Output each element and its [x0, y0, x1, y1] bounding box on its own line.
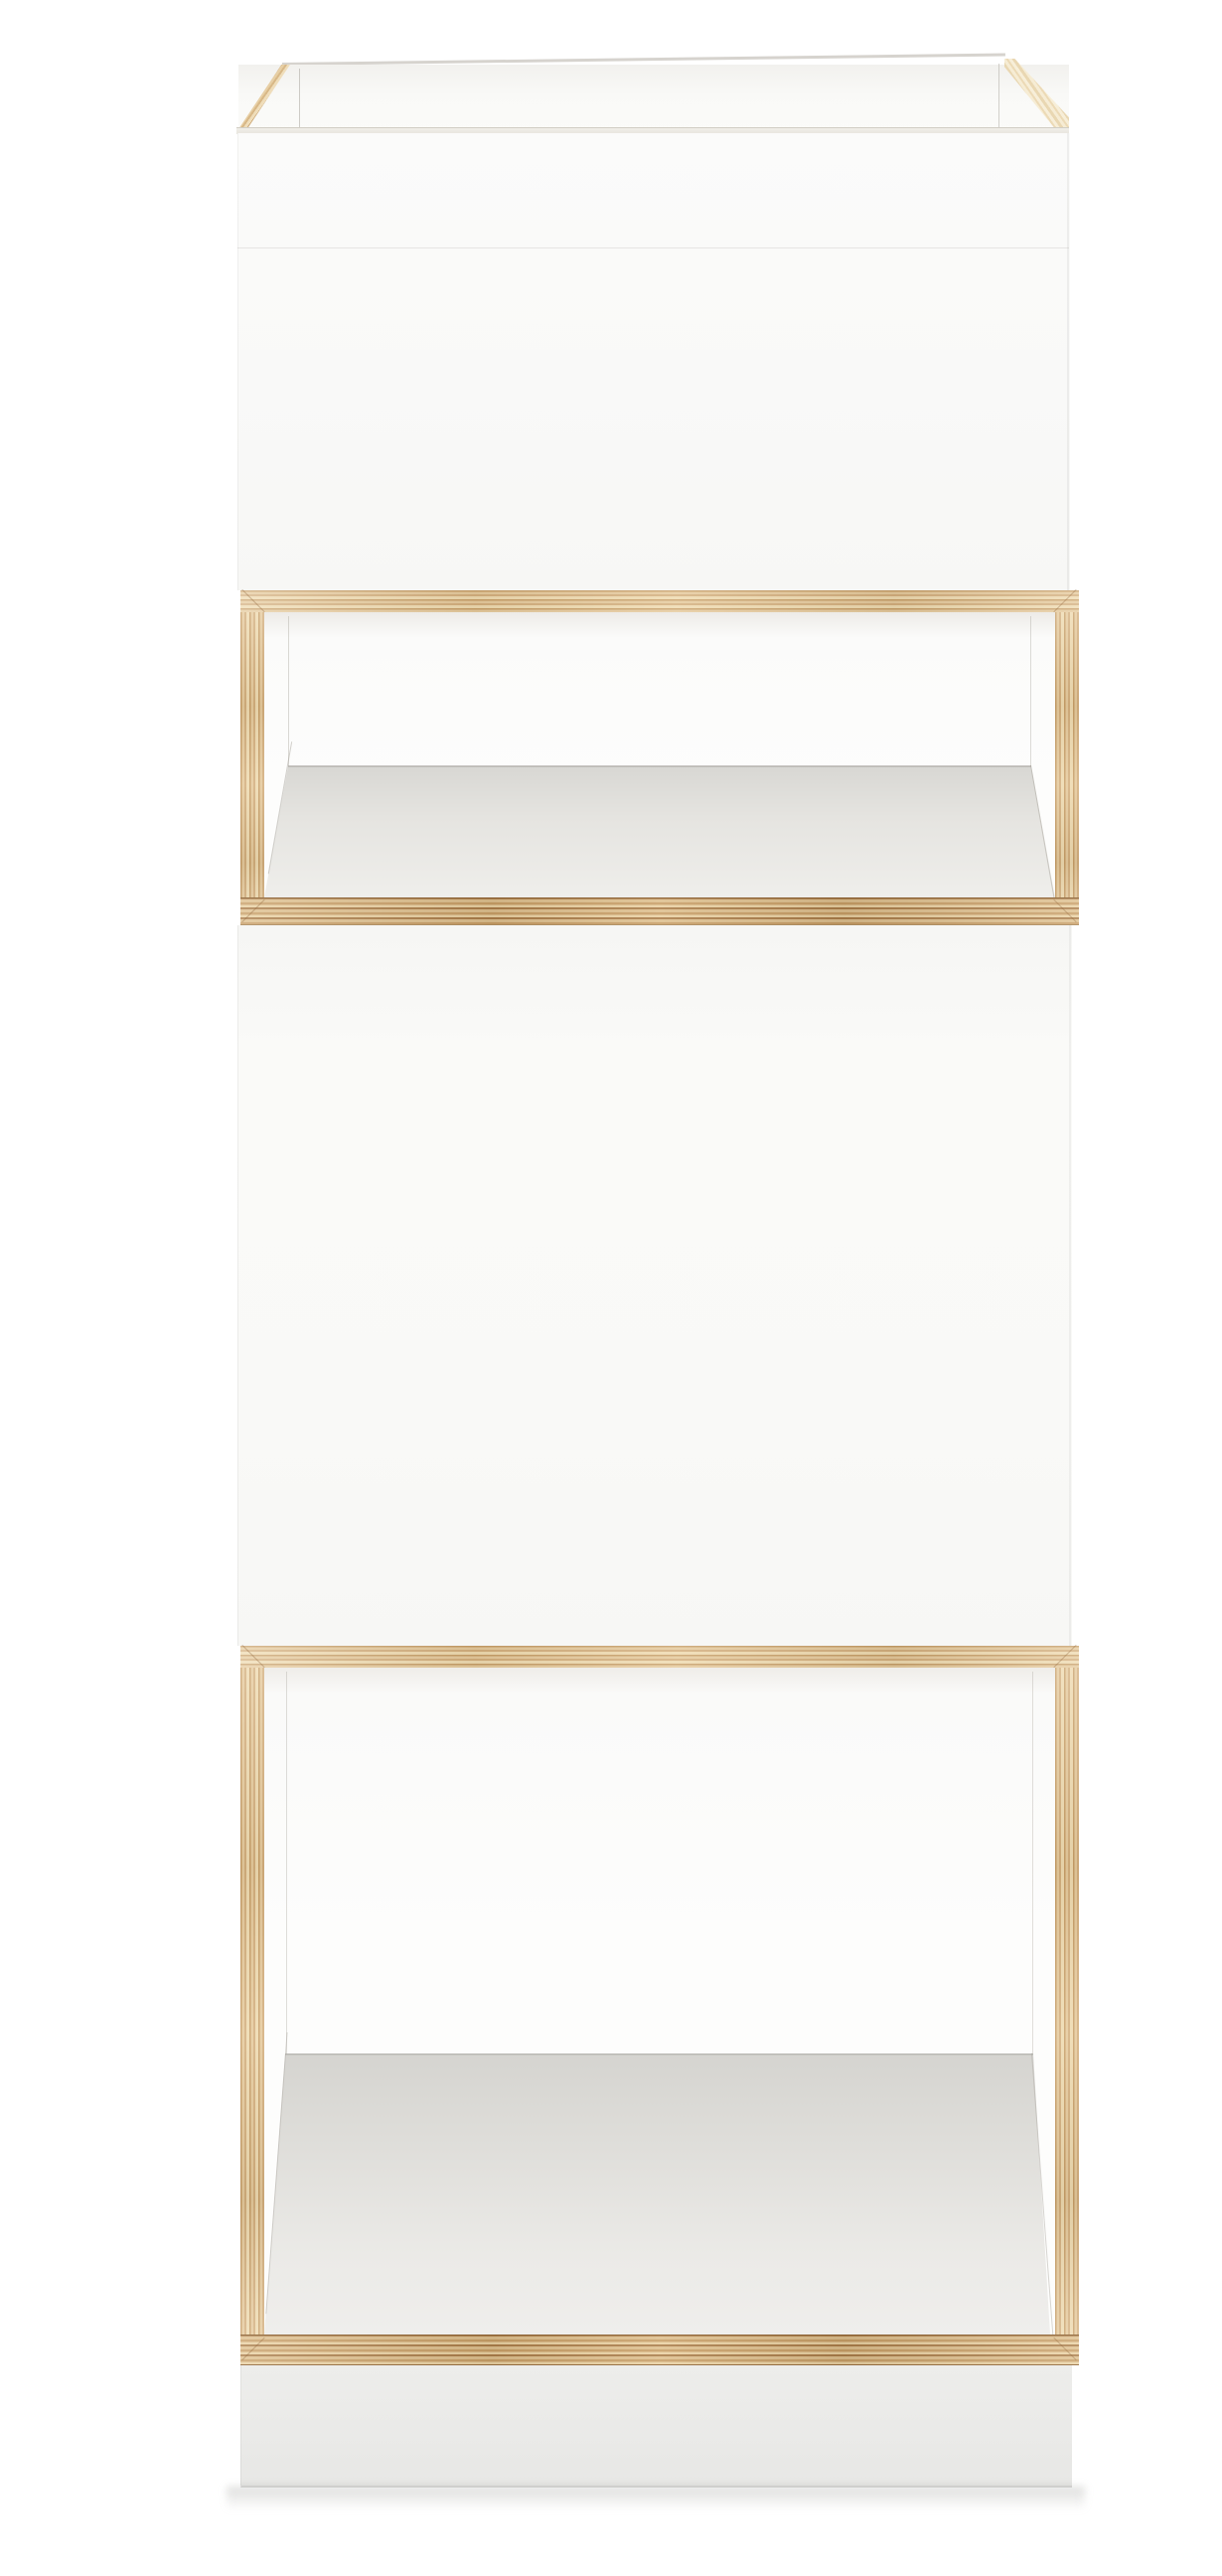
closed-front-panel — [237, 925, 1072, 1646]
top-box-interior — [238, 65, 1069, 132]
shelf-inner-corner-right — [1030, 616, 1031, 766]
shelf-inner-corner-left — [288, 616, 289, 766]
shelf-frame-top-rail — [240, 590, 1079, 612]
compartment-frame-bottom-band — [240, 2334, 1079, 2365]
floor-shadow — [227, 2487, 1085, 2510]
shelf-floor-back-edge — [288, 765, 1031, 767]
closed-front-right-edge — [1069, 925, 1071, 1646]
compartment-floor-back-edge — [285, 2053, 1033, 2055]
plinth-base — [240, 2365, 1072, 2488]
product-photo-shelf-tower — [40, 16, 1222, 2560]
top-box-inner-corner-left — [299, 69, 300, 130]
top-box-right-edge — [1067, 133, 1069, 590]
compartment-inner-corner-right — [1032, 1672, 1033, 2054]
shelf-frame-bottom-band — [240, 897, 1079, 925]
top-box-front-panel — [237, 133, 1070, 590]
compartment-frame-top-rail — [240, 1646, 1079, 1668]
shelf-frame-left-stile — [240, 612, 264, 925]
shelf-frame-right-stile — [1055, 612, 1079, 925]
top-box-inner-corner-right — [998, 64, 999, 128]
compartment-frame-left-stile — [240, 1668, 264, 2334]
top-box-module-seam — [237, 247, 1069, 248]
compartment-inner-corner-left — [286, 1672, 287, 2054]
compartment-frame-right-stile — [1055, 1668, 1079, 2334]
